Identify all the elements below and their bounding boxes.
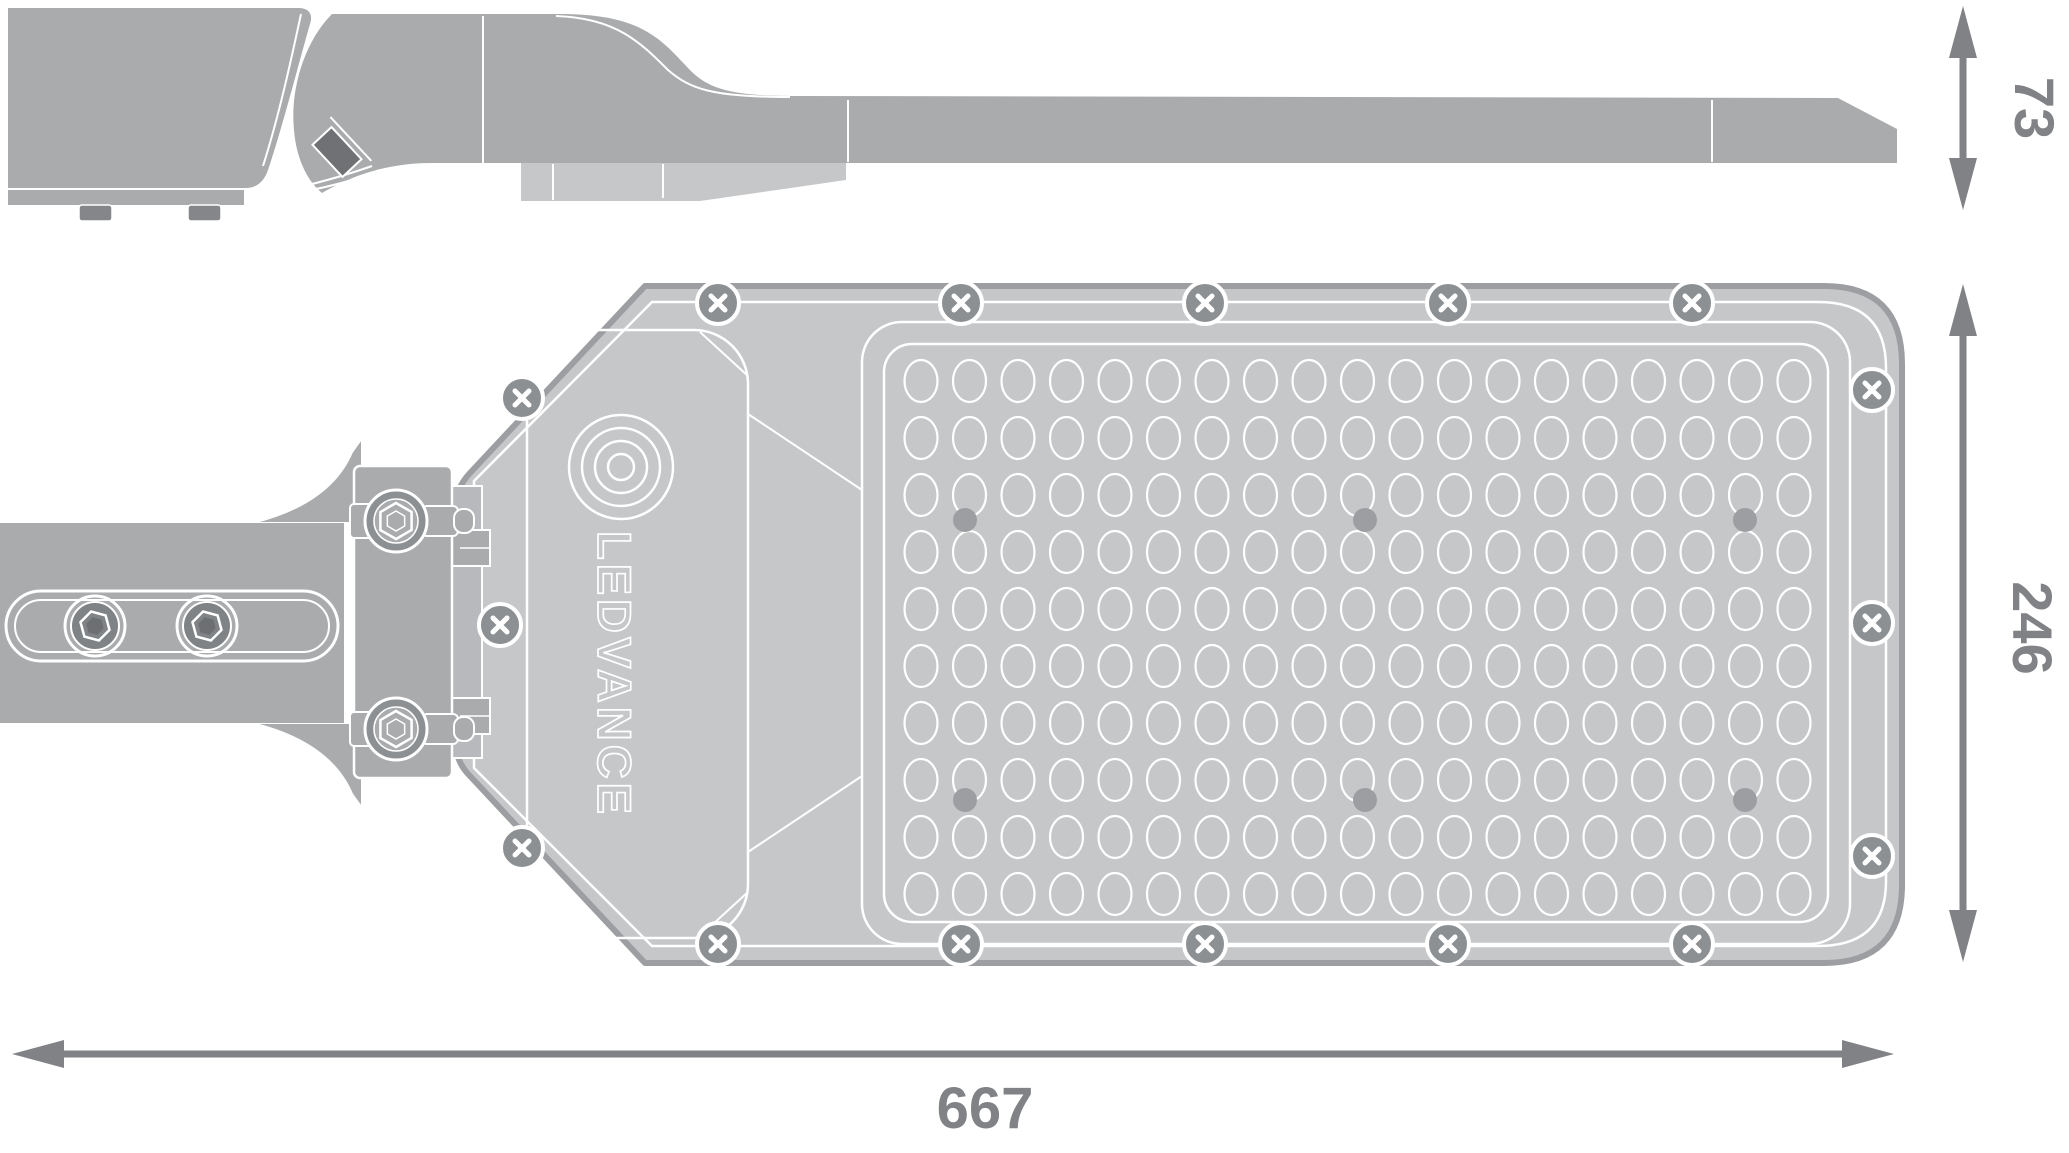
mounting-arm	[0, 523, 344, 723]
hex-socket-screw-icon	[177, 596, 237, 656]
lens-dot	[953, 508, 977, 532]
bottom-view: LEDVANCE	[0, 282, 1902, 965]
dimension-drawing-canvas: LEDVANCE 73	[0, 0, 2069, 1153]
phillips-screw-icon	[1427, 923, 1469, 965]
arm-flare-top	[252, 438, 362, 523]
phillips-screw-icon	[501, 827, 543, 869]
phillips-screw-icon	[501, 377, 543, 419]
dimension-label-height: 73	[2003, 77, 2066, 139]
phillips-screw-icon	[940, 923, 982, 965]
phillips-screw-icon	[1851, 835, 1893, 877]
side-view	[8, 8, 1897, 221]
lens-dot	[1353, 788, 1377, 812]
dimension-label-length: 667	[937, 1076, 1034, 1141]
phillips-screw-icon	[1184, 282, 1226, 324]
phillips-screw-icon	[697, 282, 739, 324]
phillips-screw-icon	[697, 923, 739, 965]
hex-socket-screw-icon	[65, 596, 125, 656]
dimension-side-height: 73	[1949, 6, 2066, 210]
lens-dot	[953, 788, 977, 812]
technical-drawing: LEDVANCE 73	[0, 0, 2069, 1153]
phillips-screw-icon	[1851, 369, 1893, 411]
lens-dot	[1353, 508, 1377, 532]
dimension-body-width: 246	[1949, 284, 2064, 962]
arm-flare-bottom	[252, 723, 362, 808]
phillips-screw-icon	[1671, 282, 1713, 324]
phillips-screw-icon	[940, 282, 982, 324]
lens-dot	[1733, 788, 1757, 812]
side-lens-edge	[521, 163, 846, 201]
bracket-tab	[188, 205, 221, 221]
lens-dot	[1733, 508, 1757, 532]
phillips-screw-icon	[1184, 923, 1226, 965]
brand-logo-text: LEDVANCE	[588, 531, 641, 818]
bracket-tab	[79, 205, 112, 221]
phillips-screw-icon	[479, 604, 521, 646]
dimension-label-width: 246	[2001, 581, 2064, 674]
dimension-total-length: 667	[12, 1040, 1894, 1141]
phillips-screw-icon	[1671, 923, 1713, 965]
phillips-screw-icon	[1851, 602, 1893, 644]
phillips-screw-icon	[1427, 282, 1469, 324]
